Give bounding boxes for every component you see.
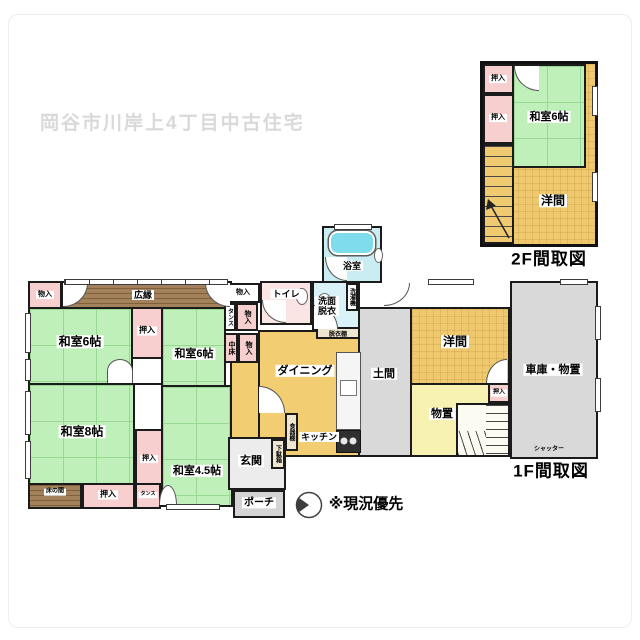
label-tatami-6b: 和室6帖 — [172, 348, 215, 360]
window-garage-right-1 — [595, 306, 601, 340]
label-monooki: 物置 — [429, 408, 455, 420]
north-arrow-icon — [294, 490, 324, 520]
bath-window-oval — [374, 248, 383, 263]
window-garage-right-2 — [595, 378, 601, 412]
door-arc-tatami — [107, 359, 133, 383]
label-bath: 浴室 — [341, 261, 363, 271]
label-shutter: シャッター — [534, 447, 564, 454]
box-storage-d: 物入 — [238, 333, 258, 363]
stairs-2f — [483, 144, 514, 244]
label-dining: ダイニング — [276, 365, 335, 377]
window-left-3 — [25, 391, 31, 435]
label-kitchen: キッチン — [299, 432, 339, 442]
kitchen-sink — [340, 380, 357, 396]
caption-1f: 1F間取図 — [513, 461, 589, 480]
caption-2f: 2F間取図 — [511, 249, 587, 268]
window-garage-top — [560, 279, 588, 285]
window-2f-right-1 — [592, 86, 598, 116]
label-doma: 土間 — [371, 368, 397, 380]
label-tatami-45: 和室4.5帖 — [171, 465, 223, 477]
room-tokonoma — [28, 483, 82, 509]
label-toilet: トイレ — [270, 289, 301, 299]
window-bath-top — [334, 224, 372, 230]
label-tatami-2f: 和室6帖 — [527, 111, 570, 123]
window-bottom-45 — [166, 504, 220, 510]
label-tokonoma: 床の間 — [44, 489, 66, 496]
label-closet-2f-b: 押入 — [489, 114, 507, 122]
label-western-1f: 洋間 — [441, 335, 469, 348]
stairs-2f-arrow-icon — [485, 146, 512, 242]
box-shoe-cabinet: 下駄箱 — [271, 439, 285, 469]
doorway-6a-8 — [131, 357, 163, 385]
label-garage: 車庫・物置 — [524, 364, 583, 376]
room-doma — [358, 307, 412, 457]
window-2f-right-2 — [592, 172, 598, 202]
label-tatami-6a: 和室6帖 — [57, 335, 104, 348]
label-storage-tl: 物入 — [36, 291, 54, 299]
label-porch: ポーチ — [242, 497, 276, 508]
watermark-text: 岡谷市川岸上4丁目中古住宅 — [40, 108, 305, 135]
window-veranda-band — [64, 279, 228, 285]
window-western-top — [428, 279, 474, 285]
label-closet-bottom: 押入 — [98, 491, 118, 500]
label-closet-stair: 押入 — [491, 390, 507, 397]
label-closet-center: 押入 — [137, 327, 157, 336]
label-entrance: 玄関 — [238, 455, 264, 467]
label-veranda: 広縁 — [132, 290, 154, 300]
label-western-2f: 洋間 — [539, 194, 567, 207]
stairs-1f-flight-vertical — [486, 405, 508, 455]
label-tatami-8: 和室8帖 — [59, 425, 106, 438]
bathtub — [329, 231, 375, 255]
label-tansu-bottom: タンス — [139, 492, 158, 498]
label-closet-mid: 押入 — [140, 455, 158, 463]
box-washing-machine: 洗濯機 — [346, 283, 358, 311]
label-closet-2f-a: 押入 — [489, 75, 507, 83]
window-left-2 — [25, 359, 31, 381]
label-storage-tr: 物入 — [234, 289, 252, 297]
floorplan-page: 岡谷市川岸上4丁目中古住宅 タンス 物入 中床 物入 洗濯機 脱衣棚 食器棚 下… — [0, 0, 640, 640]
stairs-1f — [456, 403, 510, 457]
stove-burners-icon — [337, 431, 360, 452]
window-left-1 — [25, 313, 31, 353]
label-washroom: 洗面脱衣 — [315, 296, 339, 316]
box-tansu-a: タンス — [224, 303, 236, 331]
note-text: ※現況優先 — [329, 497, 404, 514]
box-nakadoko: 中床 — [224, 333, 238, 363]
box-cupboard: 食器棚 — [285, 413, 298, 451]
stove — [336, 430, 361, 453]
window-left-4 — [25, 441, 31, 479]
stairs-1f-flight-diagonal — [458, 431, 486, 455]
box-storage-c: 物入 — [236, 303, 258, 331]
